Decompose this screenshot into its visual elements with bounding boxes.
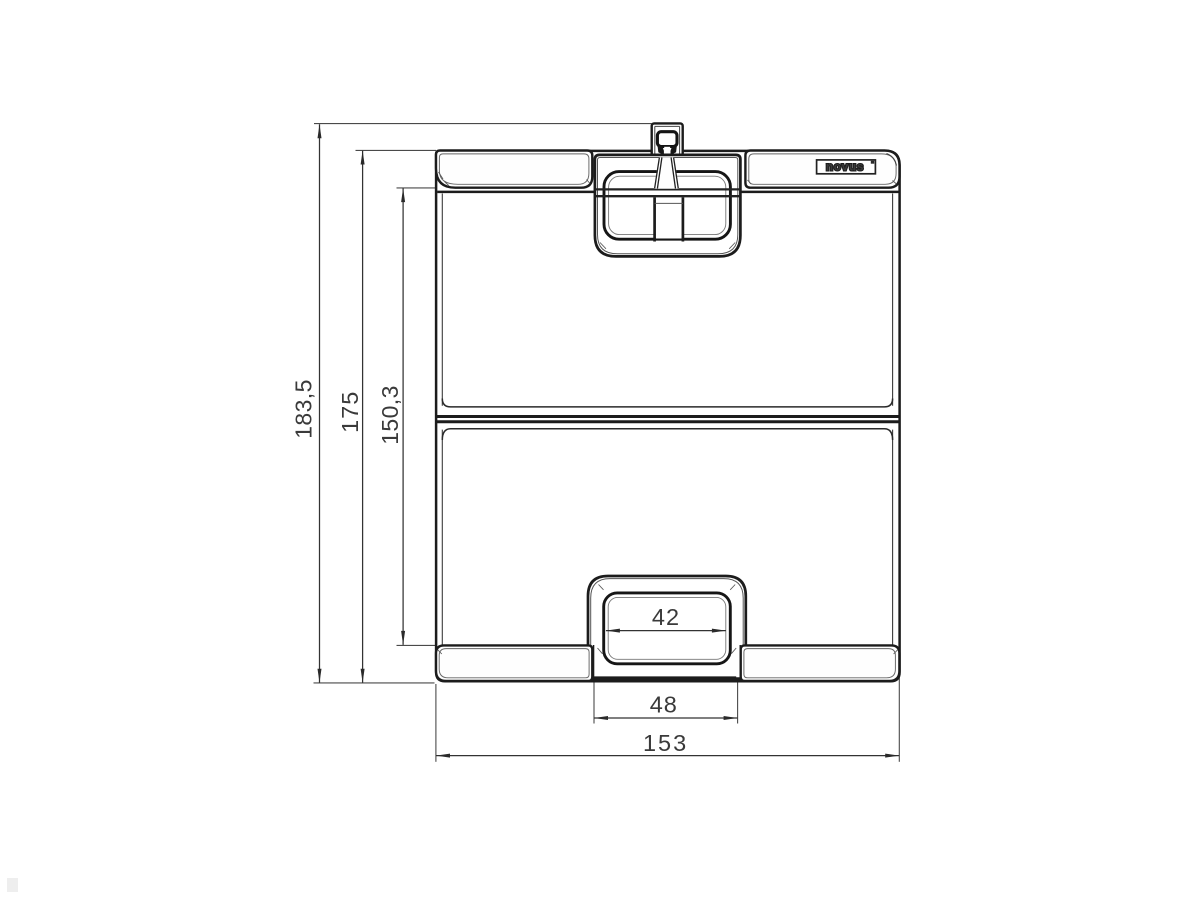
- svg-text:153: 153: [643, 730, 688, 756]
- svg-text:183,5: 183,5: [291, 379, 317, 439]
- svg-text:150,3: 150,3: [377, 385, 403, 445]
- svg-text:42: 42: [652, 604, 680, 630]
- svg-text:48: 48: [650, 692, 678, 718]
- svg-text:175: 175: [337, 391, 363, 433]
- svg-text:novus: novus: [826, 160, 864, 174]
